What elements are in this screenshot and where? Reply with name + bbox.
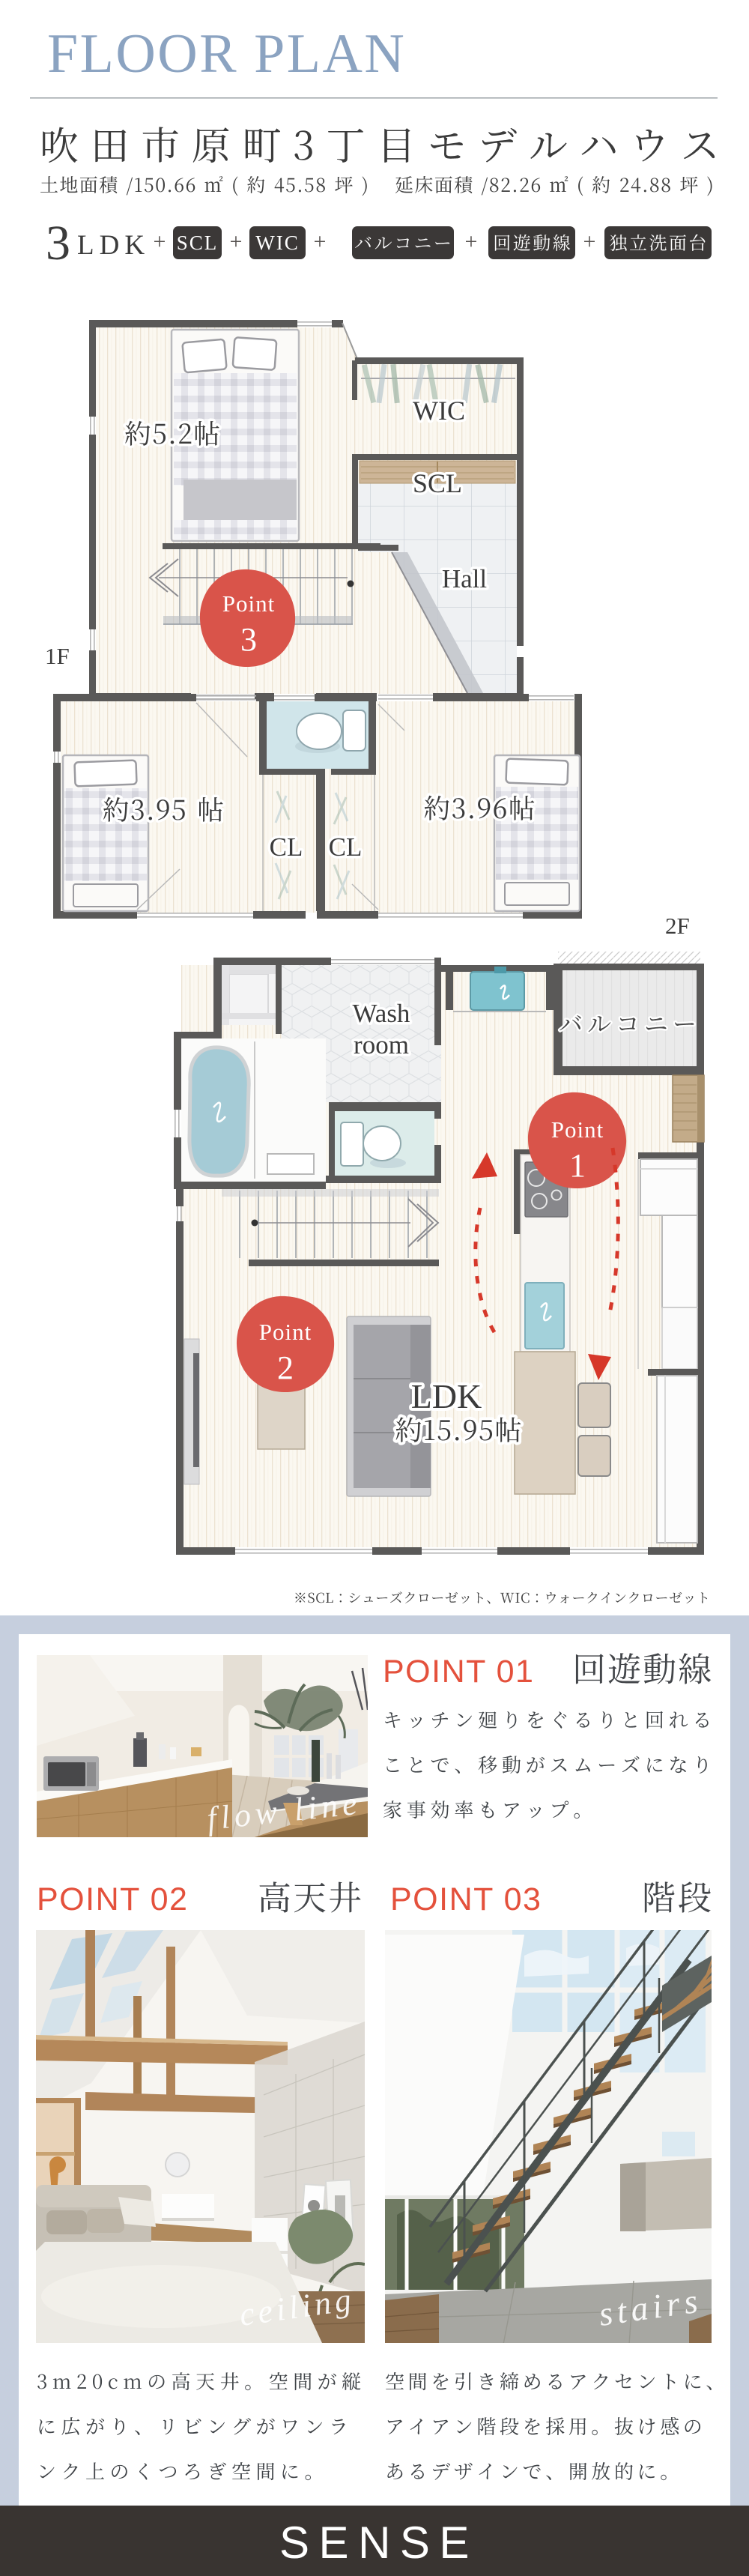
- svg-text:LDK: LDK: [411, 1377, 482, 1415]
- svg-text:+: +: [314, 229, 327, 254]
- svg-text:WIC: WIC: [413, 396, 465, 426]
- svg-text:Point: Point: [551, 1116, 604, 1143]
- svg-text:POINT 02: POINT 02: [37, 1881, 188, 1917]
- svg-text:CL: CL: [329, 832, 363, 862]
- svg-text:SCL: SCL: [177, 232, 219, 254]
- svg-text:3: 3: [46, 216, 70, 270]
- svg-text:SCL: SCL: [413, 468, 462, 498]
- svg-text:POINT 01: POINT 01: [383, 1654, 534, 1690]
- svg-text:CL: CL: [270, 832, 303, 862]
- svg-text:Point: Point: [222, 590, 275, 617]
- svg-text:POINT 03: POINT 03: [390, 1881, 542, 1917]
- svg-text:SENSE: SENSE: [279, 2518, 479, 2568]
- svg-text:Wash: Wash: [353, 999, 410, 1028]
- svg-text:1: 1: [569, 1147, 586, 1184]
- svg-text:Point: Point: [259, 1319, 312, 1345]
- svg-text:2: 2: [277, 1349, 294, 1386]
- svg-text:1F: 1F: [45, 643, 70, 669]
- svg-text:+: +: [465, 229, 478, 254]
- svg-text:room: room: [354, 1030, 409, 1059]
- svg-text:FLOOR PLAN: FLOOR PLAN: [47, 23, 406, 85]
- svg-text:+: +: [583, 229, 596, 254]
- svg-text:+: +: [154, 229, 166, 254]
- svg-text:Hall: Hall: [442, 564, 488, 593]
- svg-text:3: 3: [240, 621, 257, 658]
- svg-text:WIC: WIC: [255, 232, 299, 254]
- svg-text:2F: 2F: [665, 913, 690, 939]
- svg-text:+: +: [230, 229, 243, 254]
- svg-text:LDK: LDK: [77, 230, 150, 261]
